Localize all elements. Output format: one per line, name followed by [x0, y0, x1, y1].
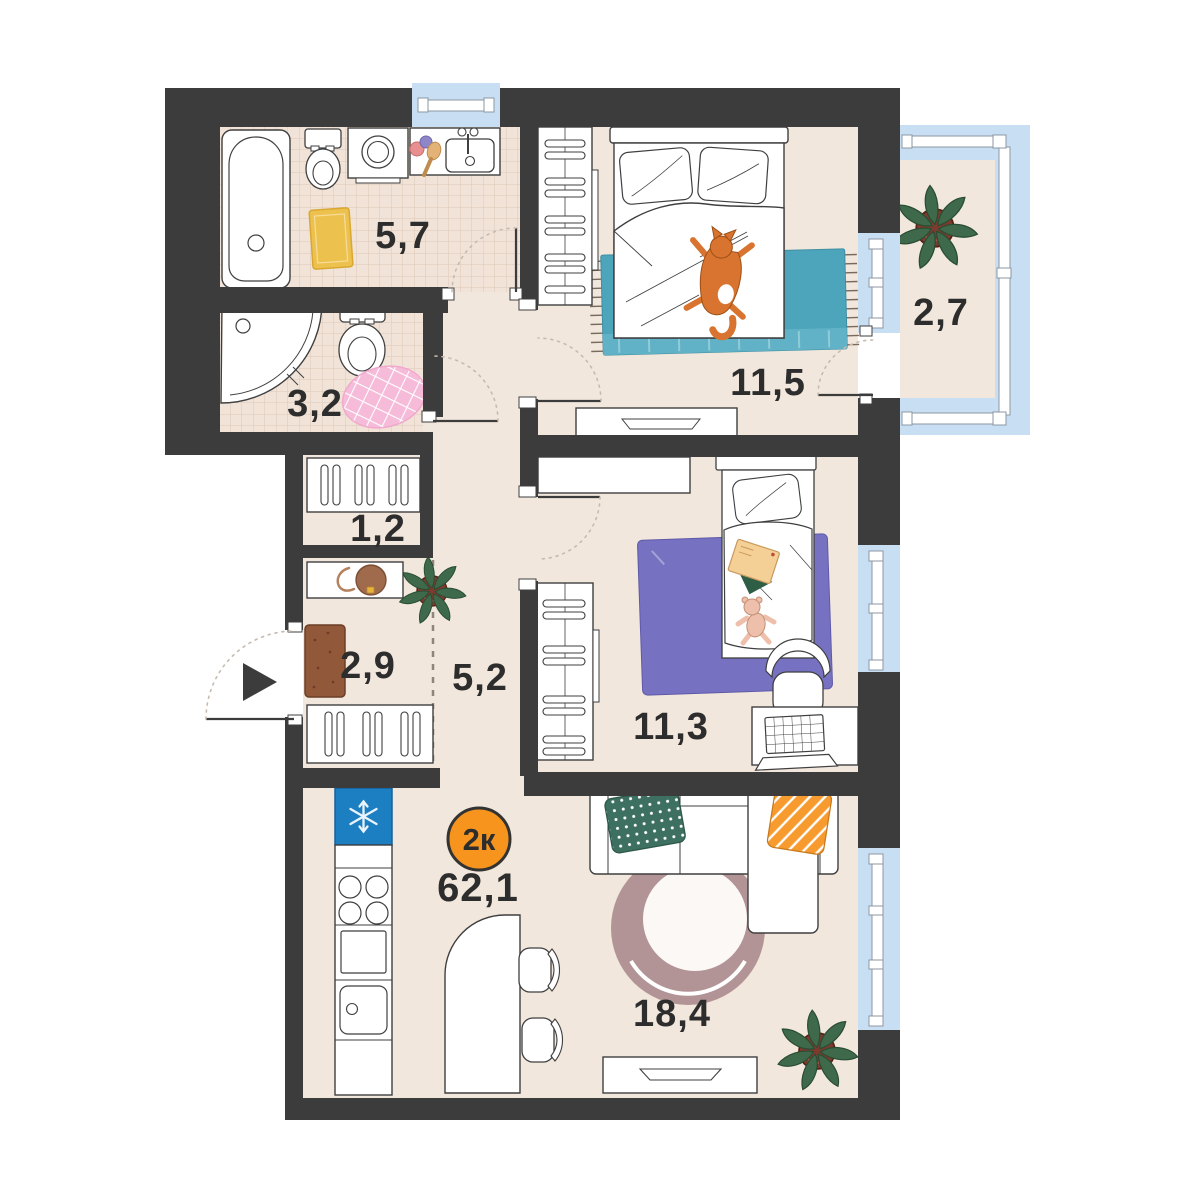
plan-badge: 2к — [448, 808, 510, 870]
kids-shelf — [538, 457, 690, 493]
hall-wardrobe — [307, 705, 433, 763]
hall-shelf — [307, 562, 403, 598]
area-label-storage: 1,2 — [350, 508, 406, 550]
kitchen-counter — [335, 845, 392, 1095]
entrance-arrow — [243, 663, 277, 701]
area-label-hallway: 2,9 — [340, 645, 396, 687]
kids-bed — [716, 455, 816, 658]
bar-table — [445, 915, 520, 1093]
kids-desk — [752, 707, 858, 770]
bath-rug — [309, 208, 353, 270]
bathroom-sink — [410, 128, 500, 175]
badge-label: 2к — [463, 822, 496, 857]
closet-rack — [307, 458, 420, 512]
window-kids — [858, 545, 900, 672]
double-bed — [610, 127, 788, 338]
balcony-floor — [900, 160, 995, 398]
bathtub — [222, 130, 290, 288]
toilet — [305, 129, 341, 189]
desk-chair — [766, 639, 830, 716]
washing-machine — [348, 128, 408, 183]
tv-stand — [603, 1057, 757, 1093]
kids-wardrobe — [536, 583, 599, 760]
area-label-corridor: 5,2 — [452, 657, 508, 699]
window-bedroom — [858, 233, 900, 333]
window-bathroom — [412, 83, 500, 127]
area-label-balcony: 2,7 — [913, 292, 969, 334]
area-label-wc: 3,2 — [287, 383, 343, 425]
area-label-bedroom: 11,5 — [730, 362, 806, 404]
total-area-label: 62,1 — [437, 866, 519, 910]
fridge — [335, 788, 392, 845]
area-label-living-kitchen: 18,4 — [633, 993, 711, 1035]
area-label-bathroom: 5,7 — [375, 215, 431, 257]
window-living — [858, 848, 900, 1030]
pillow-green — [604, 787, 686, 854]
floorplan-svg: 5,7 3,2 1,2 2,9 5,2 11,5 2,7 11,3 18,4 2… — [0, 0, 1200, 1200]
doormat — [305, 625, 345, 697]
floorplan-canvas: 5,7 3,2 1,2 2,9 5,2 11,5 2,7 11,3 18,4 2… — [0, 0, 1200, 1200]
area-label-kids-room: 11,3 — [633, 706, 709, 748]
bedroom-wardrobe — [538, 127, 598, 305]
